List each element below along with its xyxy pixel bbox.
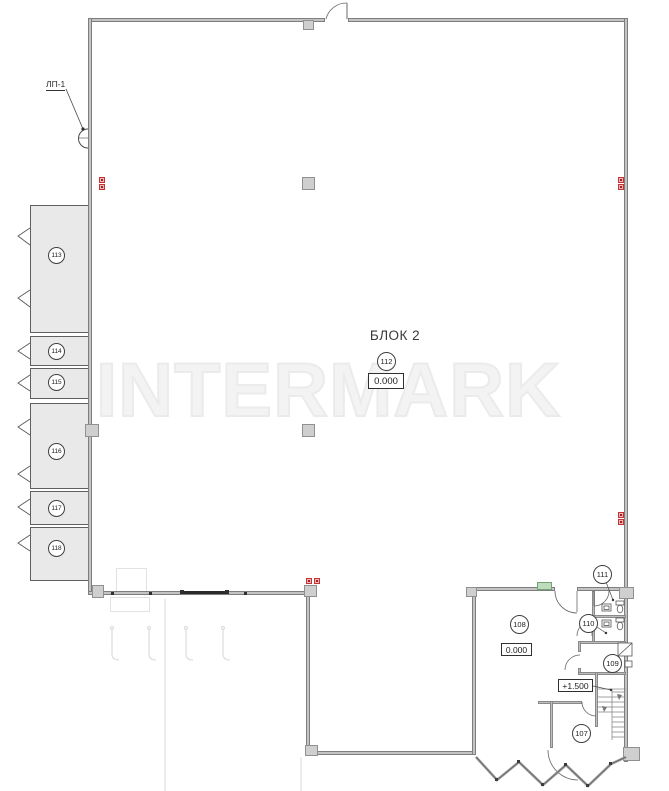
storefront-zigzag — [476, 757, 626, 787]
section-marker-icon — [618, 519, 624, 525]
column — [302, 177, 315, 190]
wall-right — [624, 18, 628, 762]
lintel-tag-icon — [537, 582, 552, 590]
room-number-111: 111 — [593, 565, 612, 584]
elevation-mark-hall: 0.000 — [368, 373, 404, 389]
stair-tag-label: ЛП-1 — [46, 79, 65, 91]
section-marker-icon — [306, 578, 312, 584]
site-boundary-line — [300, 757, 302, 791]
room-number-117: 117 — [48, 500, 65, 517]
section-marker-icon — [618, 512, 624, 518]
section-marker-icon — [99, 184, 105, 190]
partition-107-top — [538, 701, 582, 704]
column — [85, 424, 99, 437]
column — [305, 745, 318, 756]
room-number-115: 115 — [48, 374, 65, 391]
section-marker-icon — [314, 578, 320, 584]
room-number-109: 109 — [603, 654, 622, 673]
column — [304, 585, 317, 597]
room-number-116: 116 — [48, 443, 65, 460]
annex-wall-left — [472, 587, 476, 755]
wall-tick — [111, 592, 114, 595]
elevation-mark-108: 0.000 — [501, 643, 532, 656]
room-number-118: 118 — [48, 540, 65, 557]
wall-top-right — [348, 18, 628, 22]
column — [303, 20, 314, 30]
wall-mid-bottom — [306, 751, 476, 755]
room-number-107: 107 — [572, 724, 591, 743]
wall-tick — [244, 592, 247, 595]
door-top-entrance — [326, 3, 347, 19]
sliding-gate — [180, 591, 228, 594]
room-113 — [30, 205, 90, 333]
column — [619, 587, 634, 599]
wall-mid-vertical — [306, 591, 310, 755]
section-marker-icon — [99, 177, 105, 183]
floor-plan: INTERMARK — [0, 0, 669, 791]
partition-107-left — [550, 701, 553, 748]
gate-end-tick — [180, 590, 184, 594]
staircase — [597, 689, 626, 740]
elevation-mark-mezzanine: +1.500 — [558, 679, 593, 692]
gate-end-tick — [225, 590, 229, 594]
annex-wall-top-b — [577, 587, 624, 591]
room-number-112: 112 — [377, 352, 396, 371]
room-number-108: 108 — [510, 615, 529, 634]
column — [92, 585, 104, 598]
column — [466, 587, 477, 597]
section-marker-icon — [618, 184, 624, 190]
watermark-text: INTERMARK — [96, 347, 561, 434]
wall-left — [88, 18, 92, 595]
ramp-outline — [110, 597, 150, 612]
column — [623, 747, 640, 761]
partition-109-left-a — [578, 641, 581, 652]
parking-hooks — [111, 627, 231, 661]
lp1-symbol-icon — [66, 89, 88, 148]
room-number-113: 113 — [48, 247, 65, 264]
stair-wall — [595, 672, 598, 727]
room-number-110: 110 — [579, 614, 598, 633]
column — [302, 424, 315, 437]
section-marker-icon — [618, 177, 624, 183]
site-boundary-line — [164, 599, 166, 791]
wall-top-left — [88, 18, 325, 22]
block-title: БЛОК 2 — [360, 328, 430, 343]
partition-109-bottom — [578, 672, 626, 675]
room-number-114: 114 — [48, 343, 65, 360]
partition-110-109 — [578, 641, 626, 644]
left-room-doors — [18, 228, 30, 551]
wall-tick — [149, 592, 152, 595]
partition-111-110 — [592, 615, 626, 618]
